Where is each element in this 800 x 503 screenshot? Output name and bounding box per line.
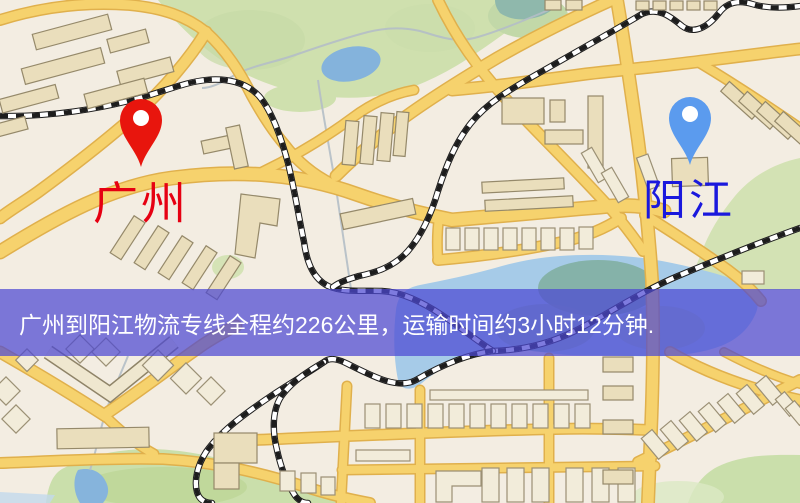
origin-city-label: 广州 xyxy=(71,181,211,226)
destination-pin-icon xyxy=(668,97,712,167)
route-info-text: 广州到阳江物流专线全程约226公里，运输时间约3小时12分钟. xyxy=(0,306,654,340)
origin-pin-icon xyxy=(119,99,163,169)
origin-pin-shape xyxy=(120,99,162,167)
map-canvas xyxy=(0,0,800,503)
destination-pin-hole xyxy=(682,106,698,122)
map-image: 广州 阳江 广州到阳江物流专线全程约226公里，运输时间约3小时12分钟. xyxy=(0,0,800,503)
origin-pin-hole xyxy=(133,110,149,126)
route-info-banner: 广州到阳江物流专线全程约226公里，运输时间约3小时12分钟. xyxy=(0,289,800,356)
destination-city-label: 阳江 xyxy=(619,180,759,223)
